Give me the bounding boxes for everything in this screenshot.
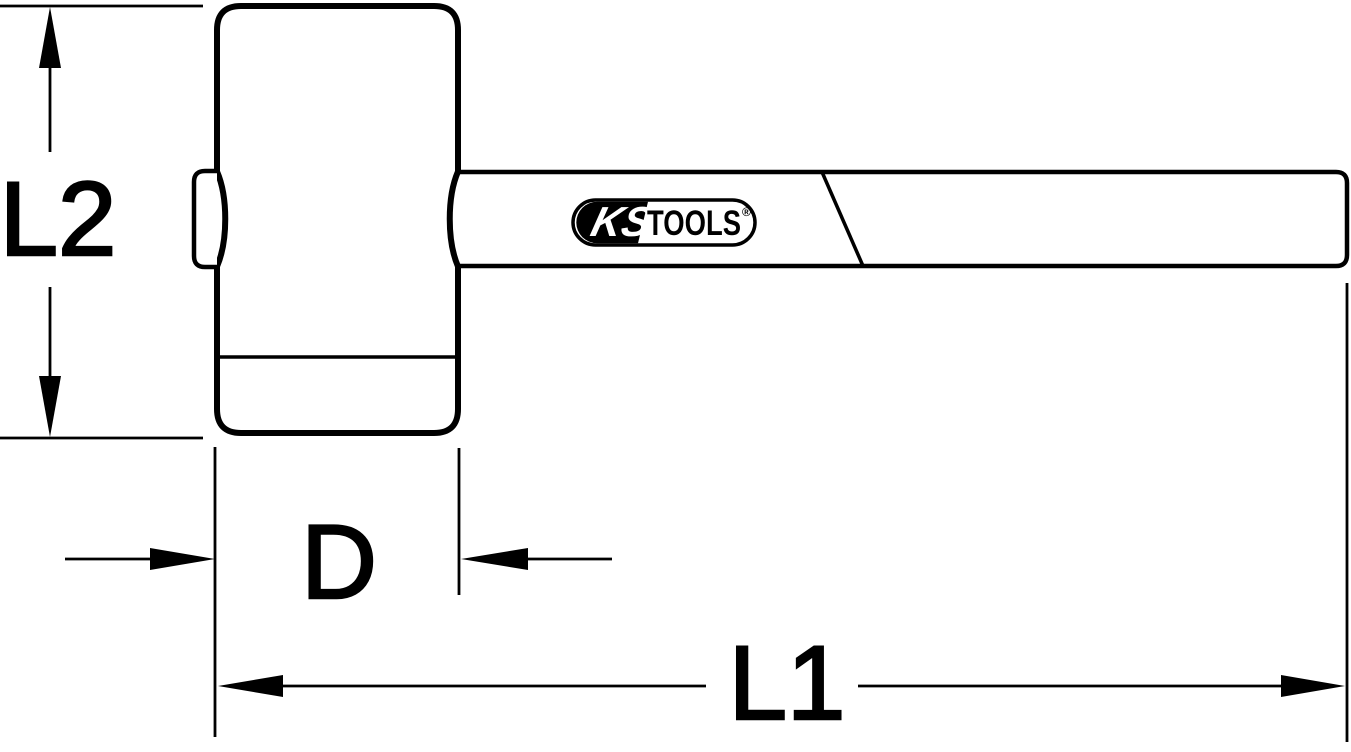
dimension-d: D [65, 447, 612, 737]
d-left-pointing-arrowhead [461, 548, 528, 570]
l2-up-arrowhead [39, 7, 61, 68]
d-right-pointing-arrowhead [150, 548, 215, 570]
hammer: KS TOOLS ® [194, 6, 1347, 433]
l1-right-arrowhead [1281, 675, 1345, 697]
l2-down-arrowhead [39, 376, 61, 437]
l1-label: L1 [729, 625, 846, 742]
handle-end-cap [194, 171, 217, 267]
hammer-head-outline [217, 6, 458, 433]
technical-drawing-mallet: KS TOOLS ® L2 D L1 [0, 0, 1351, 752]
l2-label: L2 [0, 161, 116, 278]
l1-left-arrowhead [218, 675, 283, 697]
dimension-l2: L2 [0, 6, 203, 438]
logo-tools-text: TOOLS [647, 204, 741, 243]
logo-registered-mark: ® [742, 205, 751, 219]
d-label: D [301, 504, 377, 621]
logo-ks-text: KS [586, 199, 656, 246]
ks-tools-logo: KS TOOLS ® [573, 199, 755, 246]
